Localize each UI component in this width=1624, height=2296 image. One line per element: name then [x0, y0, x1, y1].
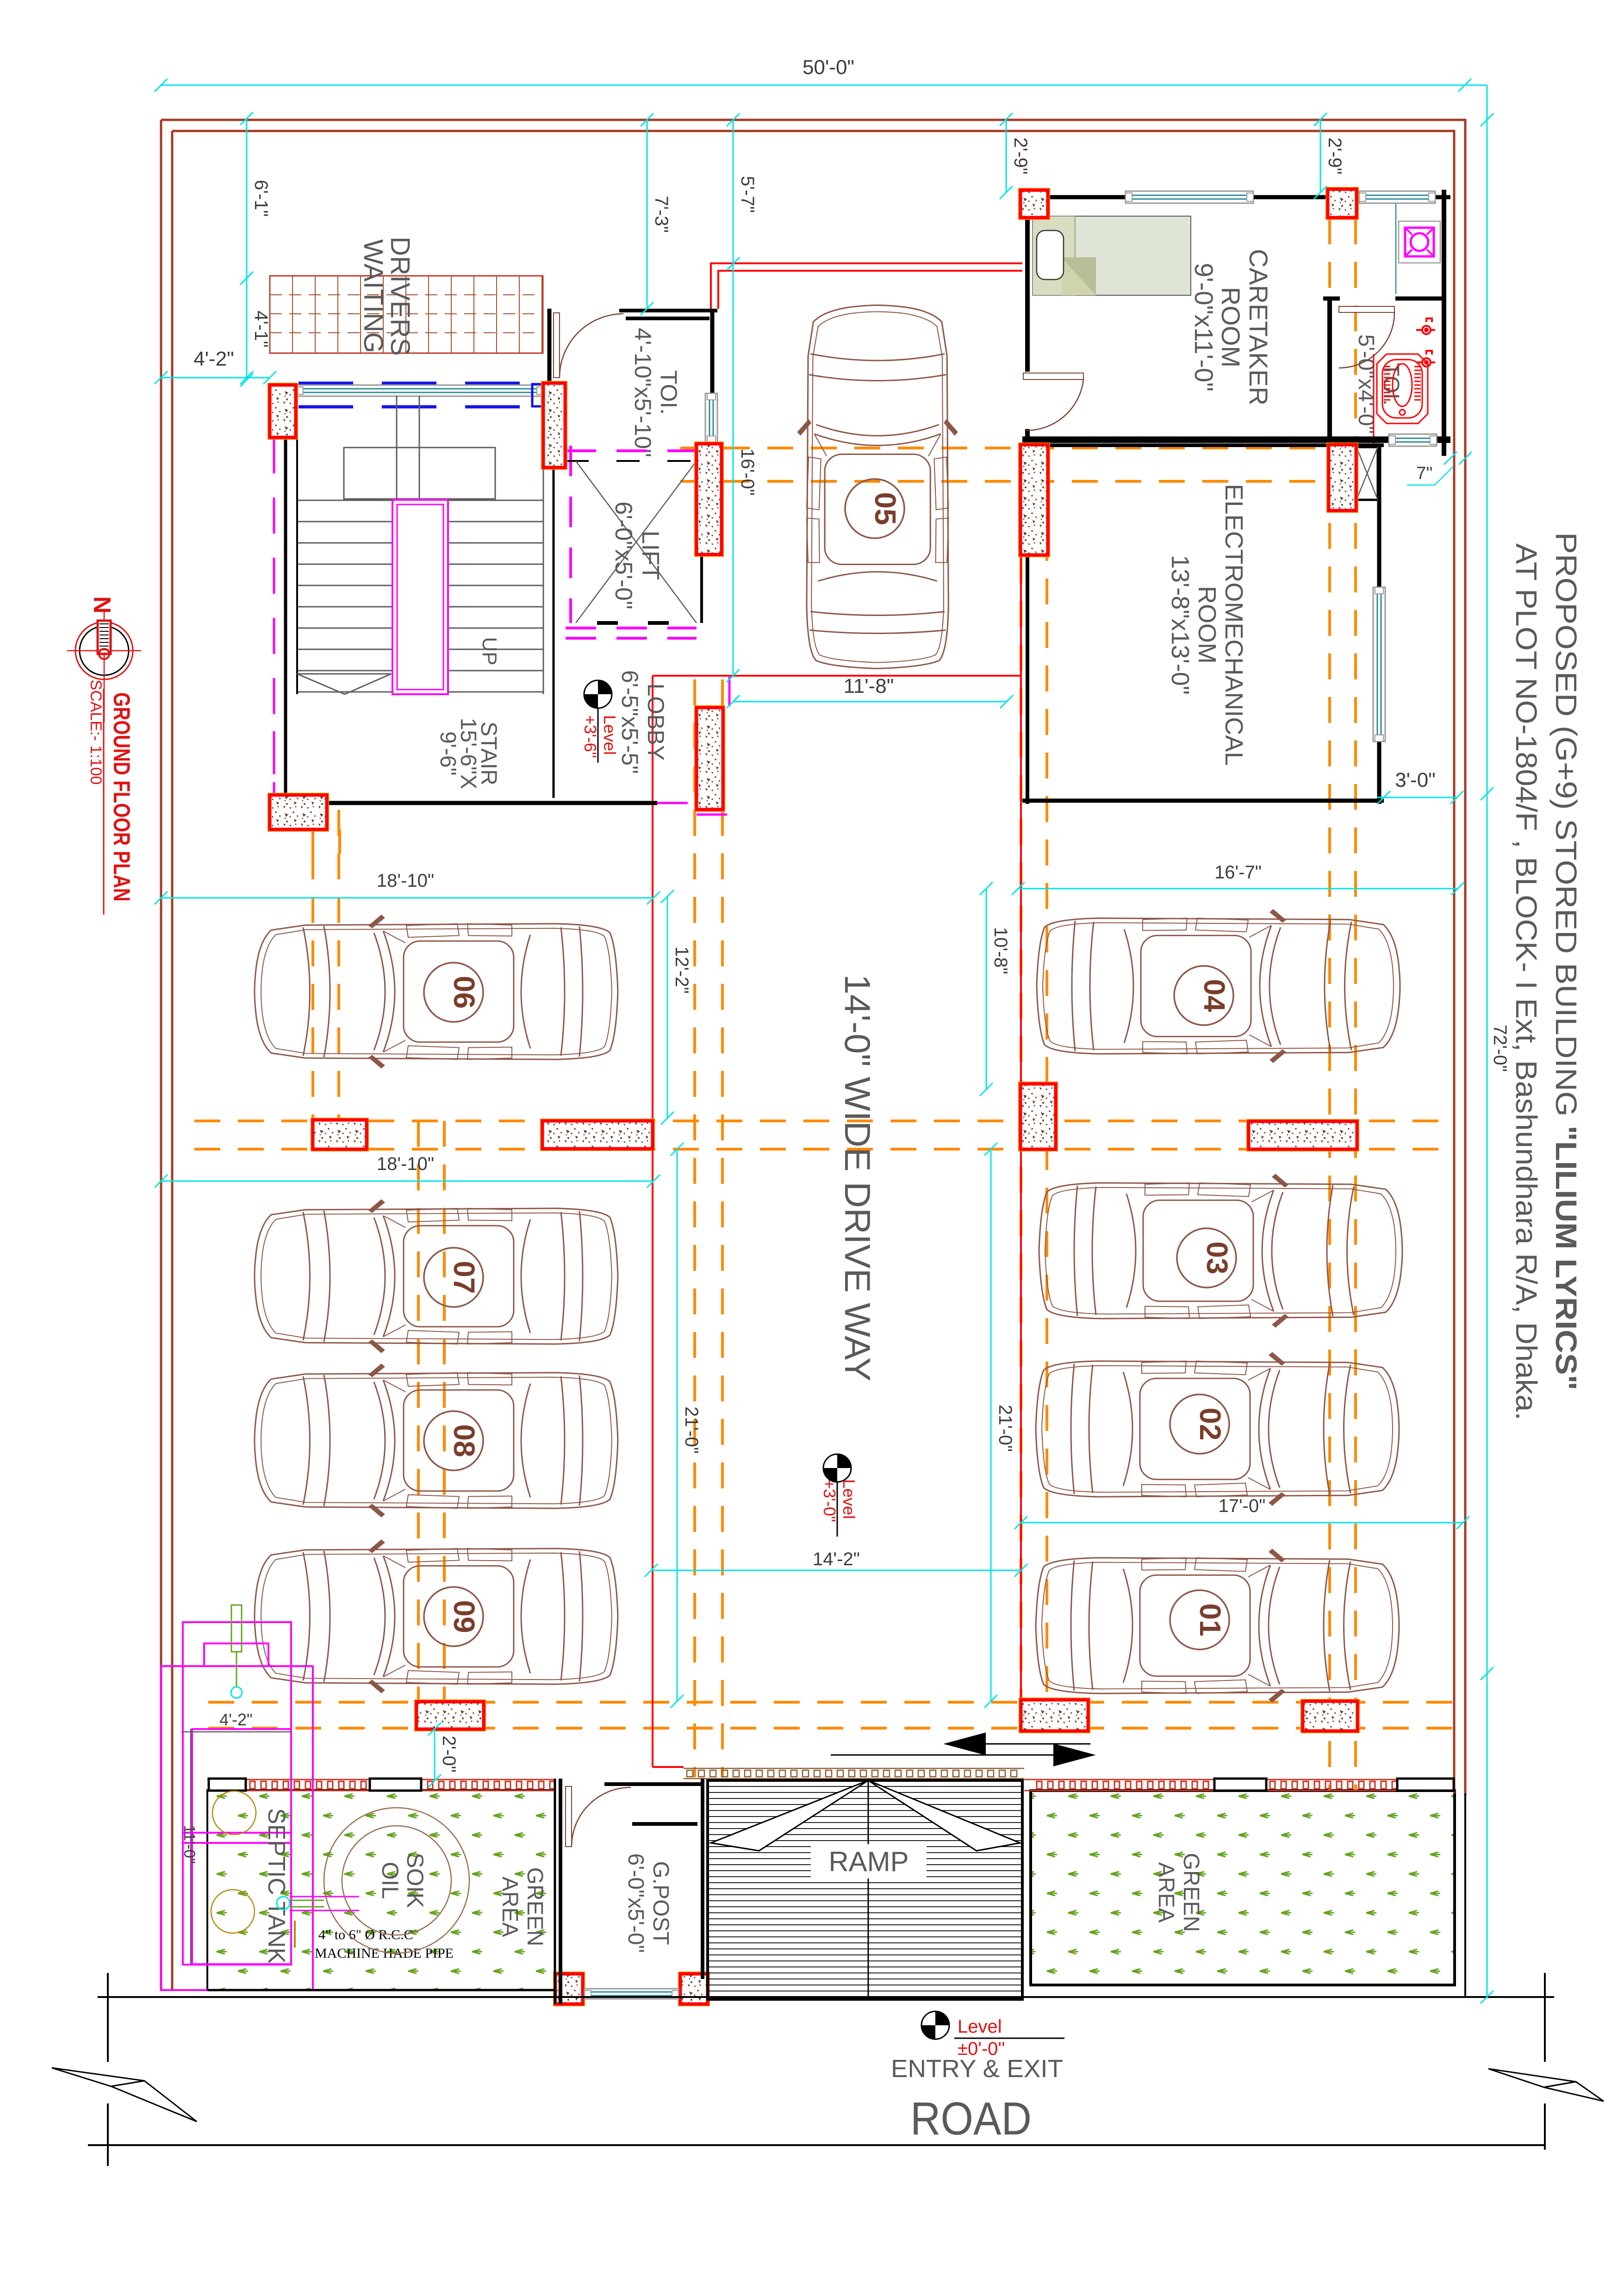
svg-text:ROOM: ROOM — [1193, 586, 1221, 664]
svg-text:09: 09 — [448, 1600, 481, 1633]
svg-text:Level: Level — [958, 2016, 1002, 2037]
svg-text:03: 03 — [1201, 1241, 1234, 1274]
svg-text:TOI.: TOI. — [656, 370, 682, 415]
svg-text:6'-1": 6'-1" — [251, 180, 271, 217]
svg-text:02: 02 — [1194, 1407, 1227, 1440]
svg-text:LOBBY: LOBBY — [643, 684, 669, 761]
svg-text:WAITING: WAITING — [358, 239, 388, 353]
svg-text:ELECTROMECHANICAL: ELECTROMECHANICAL — [1220, 484, 1248, 765]
svg-text:13'-8"x13'-0": 13'-8"x13'-0" — [1166, 555, 1194, 695]
svg-text:2'-9": 2'-9" — [1325, 137, 1345, 174]
svg-text:17'-0": 17'-0" — [1219, 1496, 1266, 1516]
svg-text:05: 05 — [869, 492, 902, 525]
svg-text:LIFT: LIFT — [637, 531, 664, 580]
svg-text:7'-3": 7'-3" — [651, 196, 672, 233]
svg-text:ROAD: ROAD — [910, 2093, 1032, 2145]
svg-text:18'-10": 18'-10" — [377, 871, 434, 891]
svg-text:AREA: AREA — [498, 1877, 522, 1937]
svg-text:2'-9": 2'-9" — [1010, 137, 1031, 174]
svg-text:+3'-6": +3'-6" — [581, 715, 600, 758]
svg-text:5'-0"x4'-0": 5'-0"x4'-0" — [1354, 334, 1378, 434]
svg-text:RAMP: RAMP — [828, 1846, 908, 1877]
svg-text:7'': 7'' — [1416, 464, 1433, 483]
svg-text:2'-0": 2'-0" — [439, 1736, 459, 1773]
svg-text:SCALE:- 1:100: SCALE:- 1:100 — [87, 680, 105, 785]
svg-text:14'-0" WIDE DRIVE WAY: 14'-0" WIDE DRIVE WAY — [837, 974, 878, 1381]
svg-text:OIL: OIL — [377, 1862, 403, 1899]
svg-text:GREEN: GREEN — [523, 1867, 547, 1947]
svg-text:11'-0": 11'-0" — [180, 1825, 198, 1864]
svg-text:16'-0": 16'-0" — [737, 448, 758, 496]
svg-text:DRIVERS: DRIVERS — [385, 236, 415, 356]
svg-text:21'-0": 21'-0" — [995, 1405, 1015, 1452]
svg-text:CARETAKER: CARETAKER — [1244, 249, 1273, 405]
svg-text:12'-2": 12'-2" — [672, 946, 692, 994]
svg-text:SEPTIC TANK: SEPTIC TANK — [263, 1808, 290, 1964]
svg-text:9'-6": 9'-6" — [436, 731, 460, 776]
svg-text:G.POST: G.POST — [648, 1861, 673, 1945]
svg-text:4'-1": 4'-1" — [251, 311, 271, 348]
svg-text:4'-2": 4'-2" — [219, 1710, 253, 1729]
svg-text:6'-5"x5'-5": 6'-5"x5'-5" — [617, 670, 643, 774]
svg-text:UP: UP — [478, 637, 501, 665]
svg-text:9'-0"x11'-0": 9'-0"x11'-0" — [1189, 263, 1219, 392]
svg-text:PROPOSED (G+9) STORED BUILDING: PROPOSED (G+9) STORED BUILDING "LILIUM L… — [1549, 532, 1583, 1390]
svg-text:11'-8": 11'-8" — [844, 675, 894, 697]
svg-text:N: N — [88, 596, 115, 614]
svg-text:06: 06 — [448, 976, 481, 1008]
svg-text:6'-0"x5'-0": 6'-0"x5'-0" — [610, 501, 637, 609]
svg-text:4'-10"x5'-10": 4'-10"x5'-10" — [630, 328, 656, 457]
svg-text:07: 07 — [448, 1261, 481, 1294]
svg-text:04: 04 — [1198, 979, 1231, 1012]
svg-text:16'-7": 16'-7" — [1214, 862, 1262, 883]
svg-text:Level: Level — [840, 1479, 859, 1519]
svg-text:21'-0": 21'-0" — [681, 1406, 702, 1454]
svg-text:50'-0": 50'-0" — [803, 56, 854, 79]
svg-text:+3'-0": +3'-0" — [820, 1479, 839, 1522]
svg-text:6'-0"x5'-0": 6'-0"x5'-0" — [623, 1853, 648, 1953]
svg-text:Level: Level — [600, 715, 619, 755]
svg-text:72'-0": 72'-0" — [1490, 1025, 1510, 1072]
svg-text:GROUND FLOOR PLAN: GROUND FLOOR PLAN — [109, 692, 135, 902]
svg-text:3'-0": 3'-0" — [1395, 769, 1436, 791]
svg-text:SOIK: SOIK — [402, 1853, 428, 1908]
svg-text:ROOM: ROOM — [1216, 287, 1245, 367]
svg-text:08: 08 — [448, 1424, 481, 1457]
svg-text:01: 01 — [1194, 1603, 1227, 1636]
svg-text:MACHINE HADE PIPE: MACHINE HADE PIPE — [315, 1946, 454, 1961]
svg-text:18'-10": 18'-10" — [377, 1154, 434, 1174]
svg-text:10'-8": 10'-8" — [990, 927, 1011, 974]
svg-text:5'-7": 5'-7" — [737, 176, 758, 213]
svg-text:4'-2": 4'-2" — [193, 348, 234, 370]
svg-text:AREA: AREA — [1154, 1862, 1178, 1923]
svg-text:GREEN: GREEN — [1179, 1853, 1203, 1932]
svg-text:ENTRY & EXIT: ENTRY & EXIT — [891, 2055, 1063, 2083]
svg-text:14'-2": 14'-2" — [813, 1549, 860, 1569]
svg-text:AT PLOT NO-1804/F , BLOCK- I E: AT PLOT NO-1804/F , BLOCK- I Ext, Bashun… — [1510, 543, 1543, 1420]
